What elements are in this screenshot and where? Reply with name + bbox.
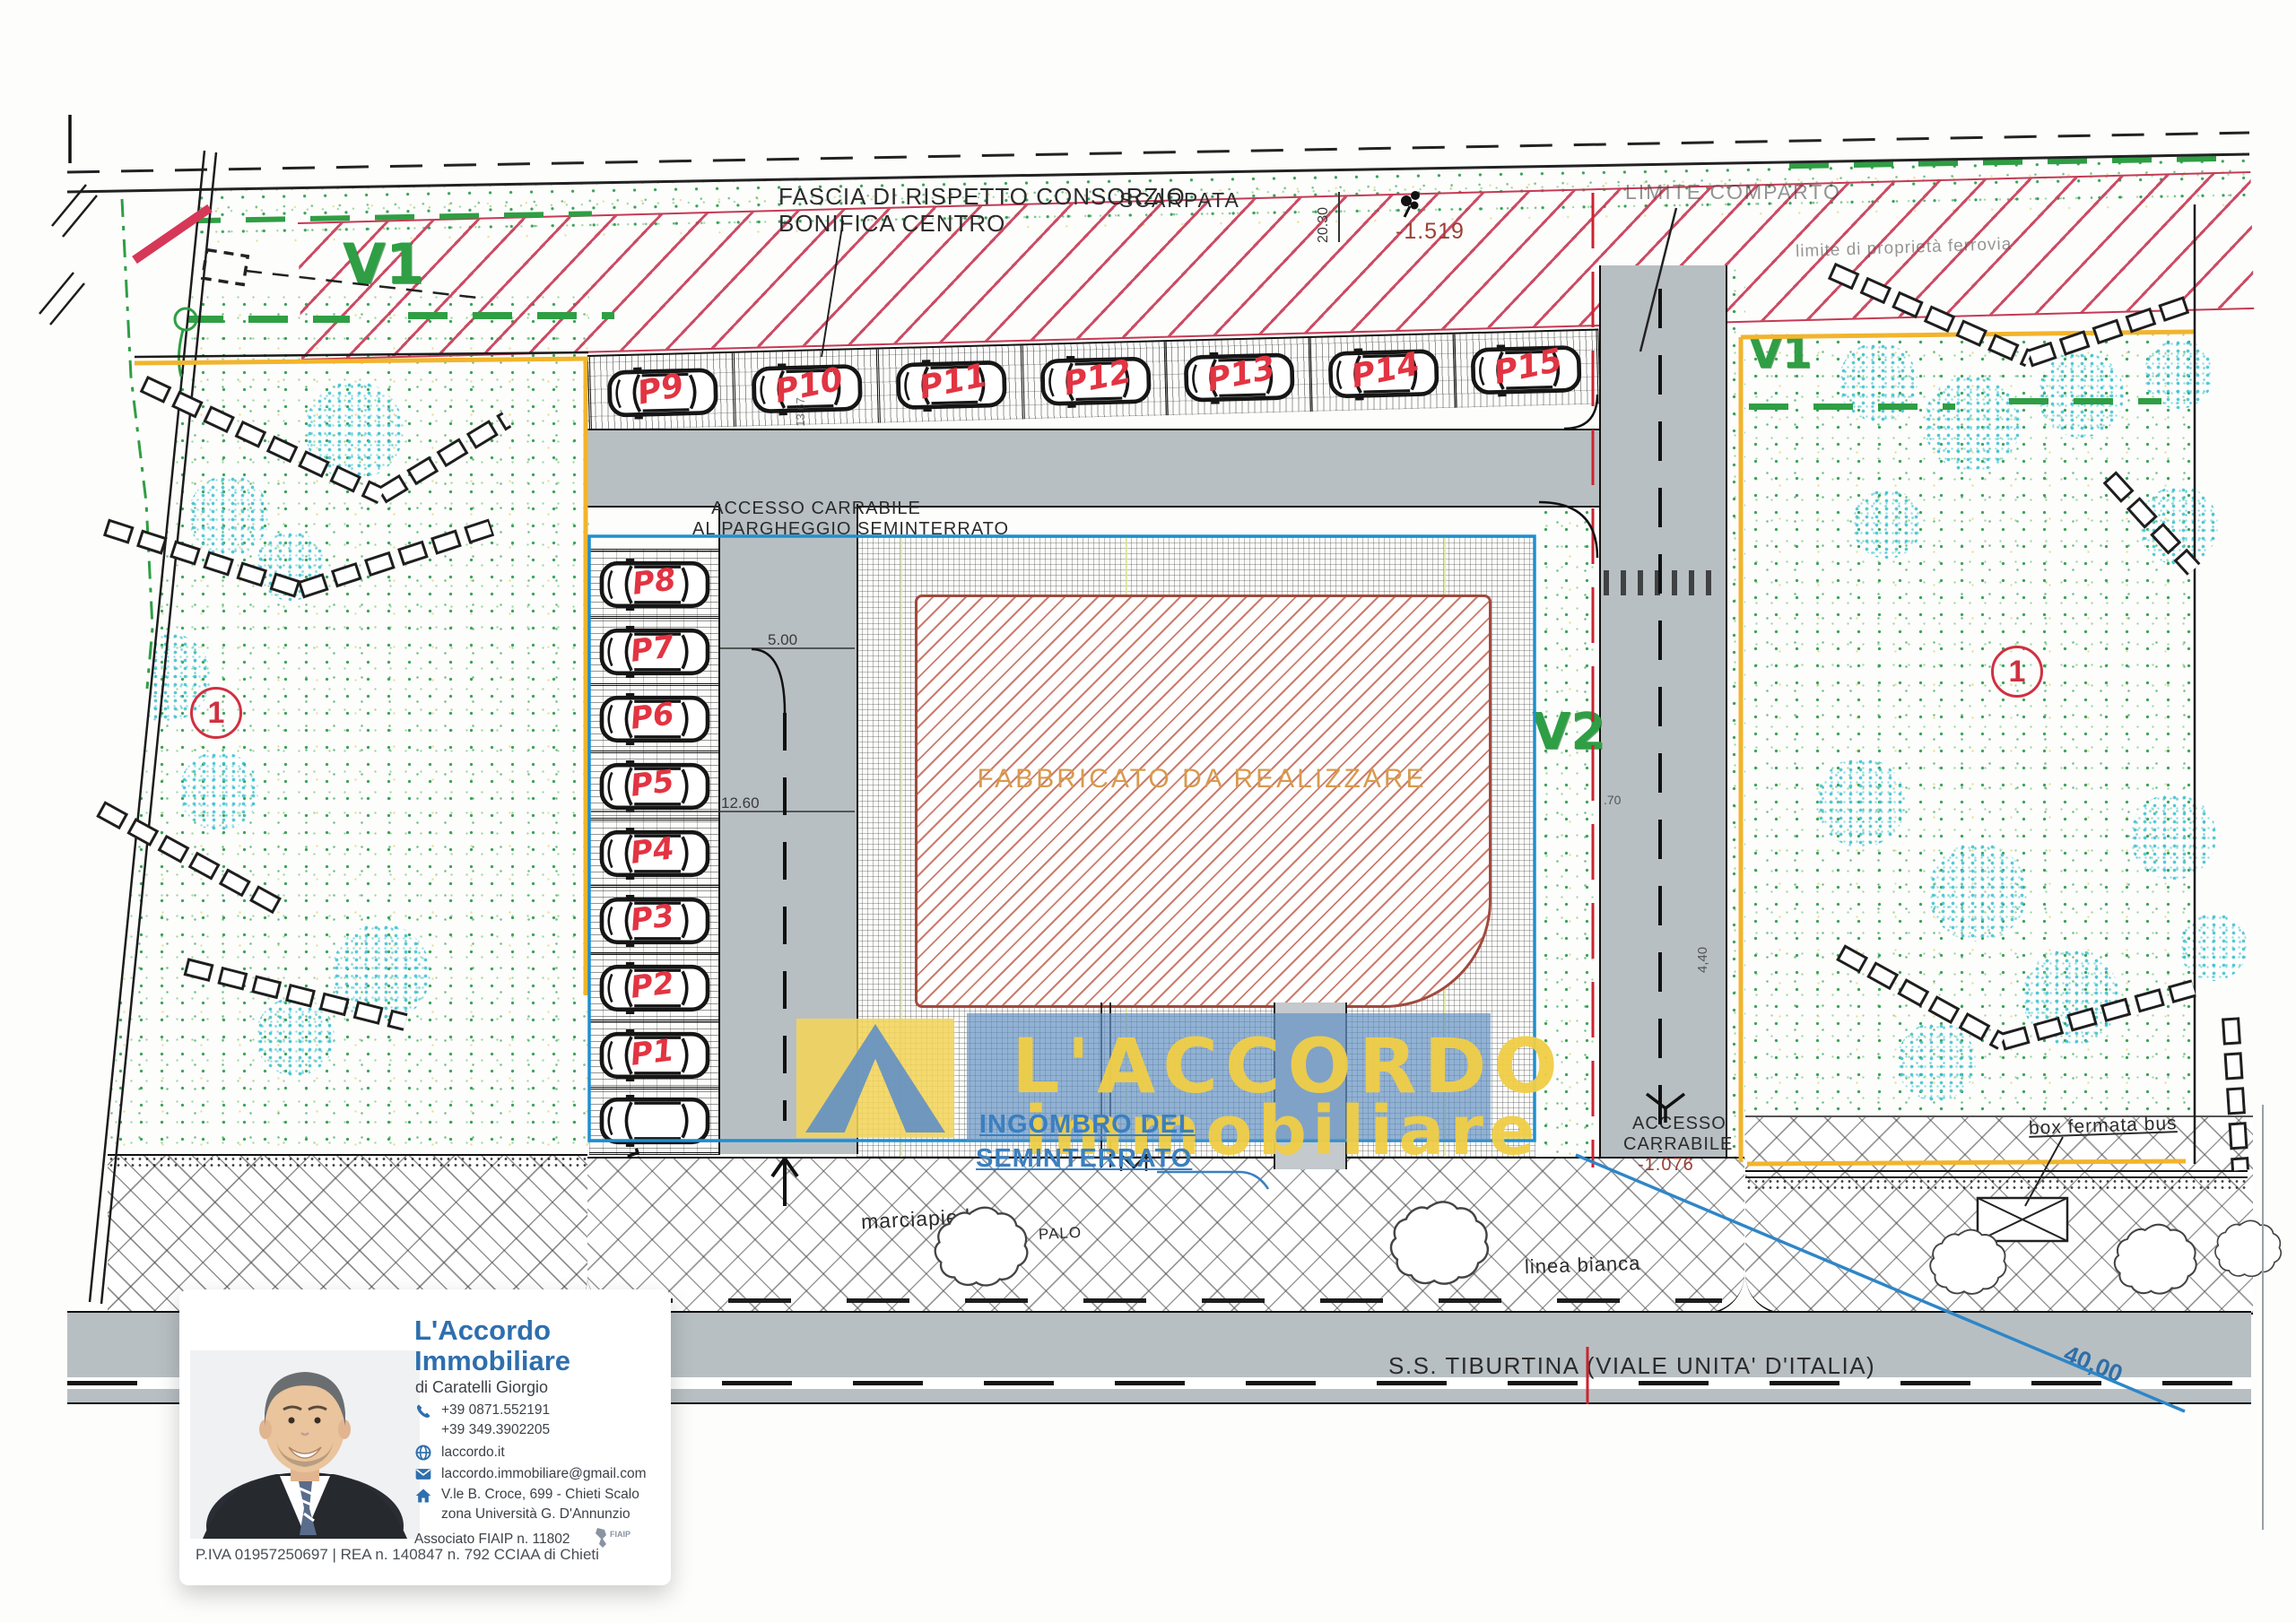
tree-cluster xyxy=(332,924,430,1022)
green-dash-line xyxy=(408,312,614,319)
white-line-dashes xyxy=(610,1298,1722,1303)
parking-stall: P9 xyxy=(587,353,734,430)
access-top-line2: AL PARGHEGGIO SEMINTERRATO xyxy=(692,519,940,540)
card-agency-name-line2: Immobiliare xyxy=(414,1345,570,1377)
agency-business-card: L'Accordo Immobiliare di Caratelli Giorg… xyxy=(179,1289,671,1585)
card-phone1: +39 0871.552191 xyxy=(441,1402,550,1419)
kerb-double-line xyxy=(1745,1170,2248,1178)
tree-cluster xyxy=(2022,949,2119,1046)
scarpata-label: SCARPATA xyxy=(1119,188,1240,213)
car-icon xyxy=(596,1095,713,1147)
mail-icon xyxy=(414,1465,432,1483)
sidewalk-center xyxy=(587,1157,1744,1315)
tree-cluster xyxy=(305,381,404,480)
lot-number-left: 1 xyxy=(190,687,242,739)
card-address1: V.le B. Croce, 699 - Chieti Scalo xyxy=(441,1487,639,1503)
parking-stall: P2 xyxy=(589,952,720,1020)
fascia-label-line2: BONIFICA CENTRO xyxy=(778,210,1005,238)
parking-stall: P13 xyxy=(1164,338,1310,415)
parking-stall: P6 xyxy=(589,683,720,751)
tree-cluster xyxy=(188,475,269,556)
parking-stall: P4 xyxy=(589,818,720,885)
globe-icon xyxy=(414,1444,432,1462)
parking-spot-label: P8 xyxy=(631,561,678,603)
tree-cluster xyxy=(2139,486,2218,565)
scarpata-quota: -1.519 xyxy=(1396,219,1465,245)
parking-spot-label: P3 xyxy=(629,898,676,939)
parking-stall: P8 xyxy=(589,549,720,616)
parking-spot-label: P4 xyxy=(629,830,676,872)
parking-spot-label: P1 xyxy=(629,1032,676,1073)
sidewalk-right xyxy=(1745,1115,2253,1315)
street-name-label: S.S. TIBURTINA (VIALE UNITA' D'ITALIA) xyxy=(1388,1352,1875,1380)
parking-stall: P5 xyxy=(589,751,720,818)
parking-spot-label: P5 xyxy=(629,763,676,804)
card-owner: di Caratelli Giorgio xyxy=(415,1378,548,1397)
dim-12-60: 12.60 xyxy=(721,794,760,812)
dotted-band-right xyxy=(1745,1178,2248,1190)
tree-cluster xyxy=(1897,1022,1976,1101)
tree-cluster xyxy=(2038,352,2124,438)
svg-text:FIAIP: FIAIP xyxy=(610,1530,631,1539)
lot-number-left-text: 1 xyxy=(208,696,225,731)
site-plan-page: FABBRICATO DA REALIZZARE P9 P10 P11 P12 … xyxy=(0,0,2296,1623)
parking-spot-label: P7 xyxy=(629,629,676,670)
card-address2: zona Università G. D'Annunzio xyxy=(441,1506,631,1523)
vertical-road xyxy=(1599,265,1727,1167)
pedestrian-crossing xyxy=(1604,570,1721,595)
horizontal-road xyxy=(587,429,1602,508)
parking-stall: P1 xyxy=(589,1020,720,1087)
dotted-band-left xyxy=(108,1156,587,1167)
palo-label: PALO xyxy=(1039,1224,1083,1244)
disabled-parking-stall: ♿ xyxy=(589,1087,720,1155)
access-right-line2: CARRABILE xyxy=(1623,1134,1709,1155)
zone-v1-right-label: V1 xyxy=(1749,328,1813,378)
tree-cluster xyxy=(1924,375,2021,472)
parking-stall: P15 xyxy=(1453,330,1601,407)
parking-stall: P12 xyxy=(1020,342,1166,419)
dim-20-30: 20.30 xyxy=(1316,189,1332,243)
tree-cluster xyxy=(256,531,326,601)
tree-cluster xyxy=(1852,489,1922,559)
watermark-a-glyph xyxy=(805,1024,945,1133)
ingombro-label-line2: SEMINTERRATO xyxy=(976,1144,1192,1174)
limite-comparto-label: LIMITE COMPARTO xyxy=(1625,180,1841,204)
parking-stall: P11 xyxy=(875,345,1022,422)
access-right-quota: -1.076 xyxy=(1638,1155,1694,1176)
tree-cluster xyxy=(2179,913,2248,981)
ingombro-label-line1: INGOMBRO DEL xyxy=(979,1110,1196,1140)
dim-4-40: 4,40 xyxy=(1695,947,1710,973)
tree-cluster xyxy=(256,997,335,1076)
parking-column-left: P8 P7 P6 P5 P4 P3 P2 P1 xyxy=(589,549,720,1155)
parking-spot-label: P6 xyxy=(629,696,676,737)
agent-photo xyxy=(190,1350,420,1539)
green-dash-line xyxy=(1749,404,1955,410)
zone-v2-label: V2 xyxy=(1532,703,1605,761)
tree-cluster xyxy=(2130,794,2216,880)
card-phone2: +39 349.3902205 xyxy=(441,1422,550,1438)
dim-5-00: 5.00 xyxy=(768,631,797,649)
tree-cluster xyxy=(1816,758,1906,847)
dim-13-67: 13.67 xyxy=(794,397,807,427)
parking-stall: P7 xyxy=(589,616,720,683)
zone-v1-left-label: V1 xyxy=(343,231,424,297)
building-label: FABBRICATO DA REALIZZARE xyxy=(933,764,1471,794)
lot-number-right: 1 xyxy=(1991,646,2043,698)
green-dash-line xyxy=(2009,398,2161,404)
new-building-footprint xyxy=(915,595,1492,1008)
parking-stall: P14 xyxy=(1309,334,1455,412)
phone-icon xyxy=(414,1402,432,1420)
access-right-line1: ACCESSO xyxy=(1632,1114,1700,1134)
lot-number-right-text: 1 xyxy=(2009,655,2026,690)
card-website: laccordo.it xyxy=(441,1445,505,1461)
tree-cluster xyxy=(1928,843,2027,942)
dim-0-70: .70 xyxy=(1604,793,1621,807)
card-vat-line: P.IVA 01957250697 | REA n. 140847 n. 792… xyxy=(196,1546,599,1564)
card-agency-name-line1: L'Accordo xyxy=(414,1315,551,1347)
card-email: laccordo.immobiliare@gmail.com xyxy=(441,1466,647,1482)
tree-cluster xyxy=(179,751,258,830)
green-dash-line xyxy=(184,316,350,323)
parking-spot-label: P2 xyxy=(629,965,676,1006)
access-top-line1: ACCESSO CARRABILE xyxy=(704,499,928,519)
home-icon xyxy=(414,1487,432,1505)
watermark-logo-square xyxy=(796,1019,954,1138)
parking-stall: P3 xyxy=(589,885,720,952)
linea-bianca-label: linea bianca xyxy=(1525,1252,1641,1280)
